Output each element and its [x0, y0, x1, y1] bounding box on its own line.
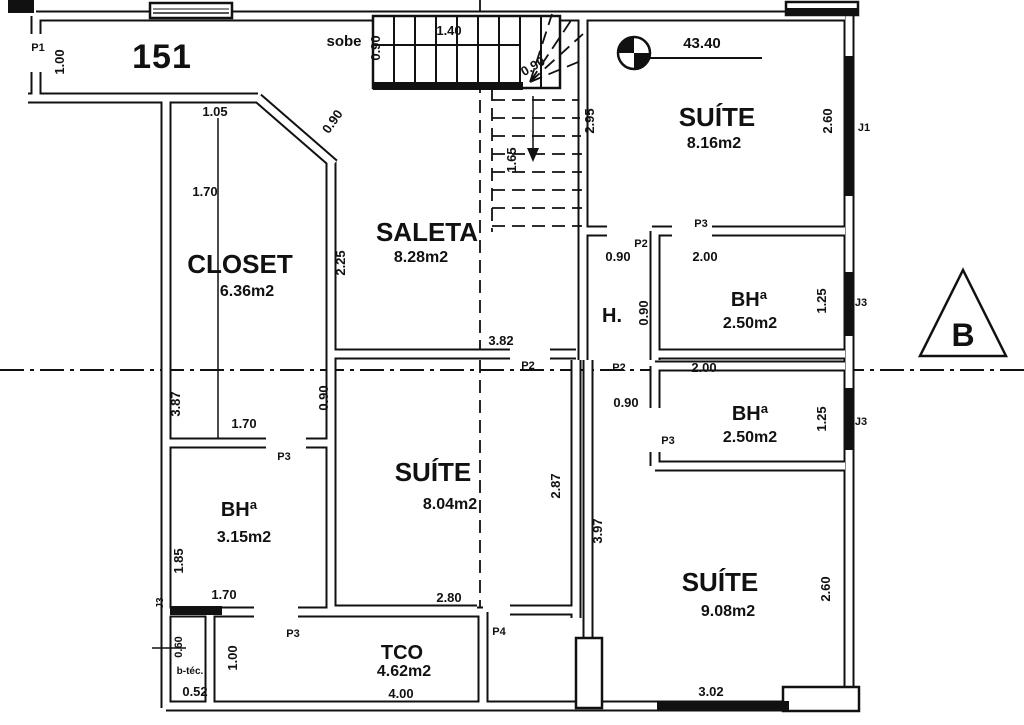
dim-wall-segment: 0.90 — [316, 385, 331, 410]
window-j1-bar — [845, 56, 854, 196]
dim-bh3-left: 1.85 — [171, 548, 186, 573]
room-bh3-area: 3.15m2 — [217, 529, 271, 546]
room-bh1-name: BHª — [731, 289, 768, 311]
door-p3-label-4: P3 — [286, 628, 299, 640]
room-bh1-area: 2.50m2 — [723, 315, 777, 332]
suite-entry-wall-return — [576, 638, 602, 708]
room-saleta-area: 8.28m2 — [394, 249, 448, 266]
window-j3-label-2: J3 — [855, 416, 867, 428]
dim-tech-height: 0.52 — [182, 684, 207, 699]
section-label: B — [951, 317, 974, 353]
room-bh2-area: 2.50m2 — [723, 429, 777, 446]
dim-tco-width: 4.00 — [388, 686, 413, 701]
dim-stair-width: 0.90 — [368, 35, 383, 60]
dim-p2-door-2: 0.90 — [613, 395, 638, 410]
dim-bh2-right: 1.25 — [814, 406, 829, 431]
room-bh3-name: BHª — [221, 499, 258, 521]
room-suite1-area: 8.16m2 — [687, 135, 741, 152]
dim-saleta-bottom: 3.82 — [488, 333, 513, 348]
top-right-window-sill — [786, 8, 858, 15]
corner-wall-return — [783, 687, 859, 711]
floor-plan: P1 1.00 151 sobe 0.90 1.40 0.90 1.65 2.9… — [0, 0, 1024, 725]
dim-bh1-right: 1.25 — [814, 288, 829, 313]
dim-stair-run: 1.65 — [504, 147, 519, 172]
door-p3-label-3: P3 — [277, 451, 290, 463]
dim-tco-left: 1.00 — [225, 645, 240, 670]
top-left-wall-block — [8, 0, 34, 13]
room-saleta-name: SALETA — [376, 217, 478, 247]
room-tco-area: 4.62m2 — [377, 663, 431, 680]
door-p3-label-1: P3 — [694, 218, 707, 230]
dim-p2-door-1: 0.90 — [605, 249, 630, 264]
dim-diag-wall: 0.90 — [319, 107, 346, 136]
stair-cut-line — [373, 82, 523, 90]
room-tco-name: TCO — [381, 642, 423, 664]
dim-left-wall: 3.87 — [168, 391, 183, 416]
room-closet-name: CLOSET — [187, 249, 293, 279]
room-suite3-area: 9.08m2 — [701, 603, 755, 620]
door-p1-label: P1 — [31, 42, 44, 54]
dim-suite1-left: 2.95 — [582, 108, 597, 133]
top-window-frame — [150, 3, 232, 18]
dim-suite3-bottom: 3.02 — [698, 684, 723, 699]
stairs — [373, 14, 583, 232]
room-suite1-name: SUÍTE — [679, 102, 756, 132]
room-suite3-name: SUÍTE — [682, 567, 759, 597]
room-suite2-name: SUÍTE — [395, 457, 472, 487]
dim-closet-top: 1.05 — [202, 104, 227, 119]
room-bh2-name: BHª — [732, 403, 769, 425]
dim-p1-width: 1.00 — [52, 49, 67, 74]
door-p3-label-2: P3 — [661, 435, 674, 447]
door-p2-label-2: P2 — [521, 360, 534, 372]
door-p2-label-1: P2 — [634, 238, 647, 250]
stair-direction-arrow-head — [527, 148, 539, 162]
dim-bh2-width: 2.00 — [691, 360, 716, 375]
dim-stair-top: 1.40 — [436, 23, 461, 38]
level-elevation: 43.40 — [683, 35, 721, 52]
stair-note: sobe — [326, 33, 361, 50]
window-j3-bar-1 — [845, 272, 854, 336]
bottom-window-bar — [657, 701, 789, 710]
room-suite2-area: 8.04m2 — [423, 496, 477, 513]
dim-suite3-left: 3.97 — [590, 518, 605, 543]
room-hall-name: H. — [602, 305, 622, 327]
dim-tech-width: 0.60 — [173, 636, 185, 657]
dim-hall-width: 0.90 — [636, 300, 651, 325]
room-tech-name: b-téc. — [177, 666, 204, 677]
dim-suite3-right: 2.60 — [818, 576, 833, 601]
window-j3-bar-2 — [845, 388, 854, 450]
floor-plan-drawing: P1 1.00 151 sobe 0.90 1.40 0.90 1.65 2.9… — [0, 0, 1024, 725]
room-closet-area: 6.36m2 — [220, 283, 274, 300]
dim-bh1-width: 2.00 — [692, 249, 717, 264]
window-j3-label-1: J3 — [855, 297, 867, 309]
unit-number: 151 — [132, 38, 192, 76]
dim-suite2-bottom: 2.80 — [436, 590, 461, 605]
dim-saleta-left: 2.25 — [333, 250, 348, 275]
window-j1-label: J1 — [858, 122, 870, 134]
dim-suite2-right: 2.87 — [548, 473, 563, 498]
window-j3-label-3: J3 — [155, 597, 166, 609]
dim-suite1-right: 2.60 — [820, 108, 835, 133]
axis-lines — [0, 0, 1024, 616]
door-p4-label: P4 — [492, 626, 506, 638]
dim-closet-width-1: 1.70 — [192, 184, 217, 199]
door-p2-label-3: P2 — [612, 362, 625, 374]
dim-closet-width-2: 1.70 — [231, 416, 256, 431]
dim-bh3-width: 1.70 — [211, 587, 236, 602]
window-j3-bar-3 — [170, 606, 222, 615]
